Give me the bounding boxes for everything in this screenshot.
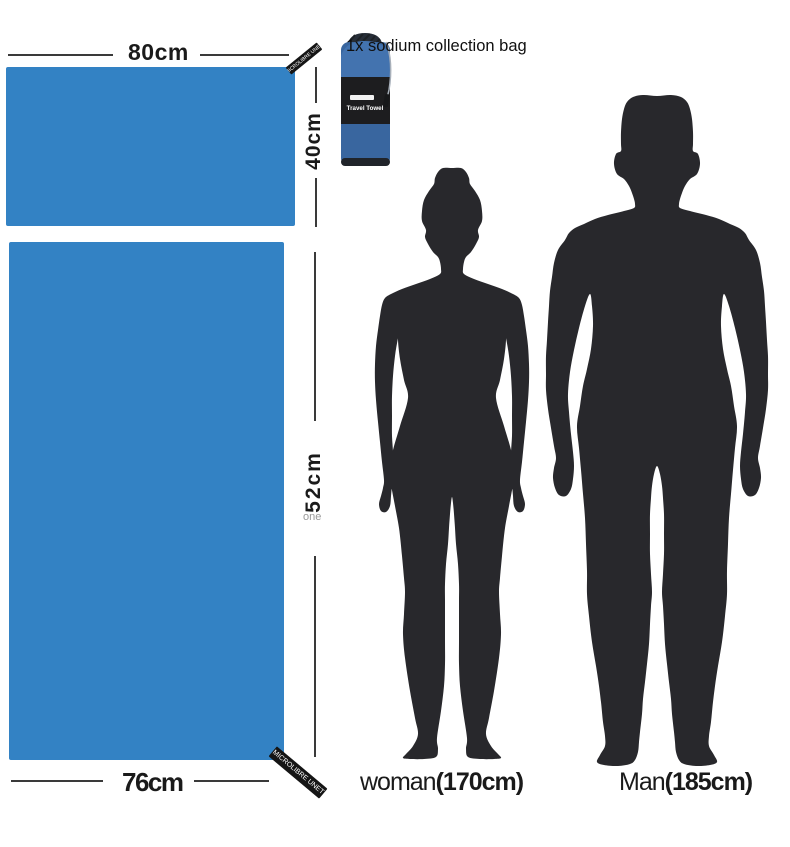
svg-text:Travel Towel: Travel Towel xyxy=(347,105,384,112)
